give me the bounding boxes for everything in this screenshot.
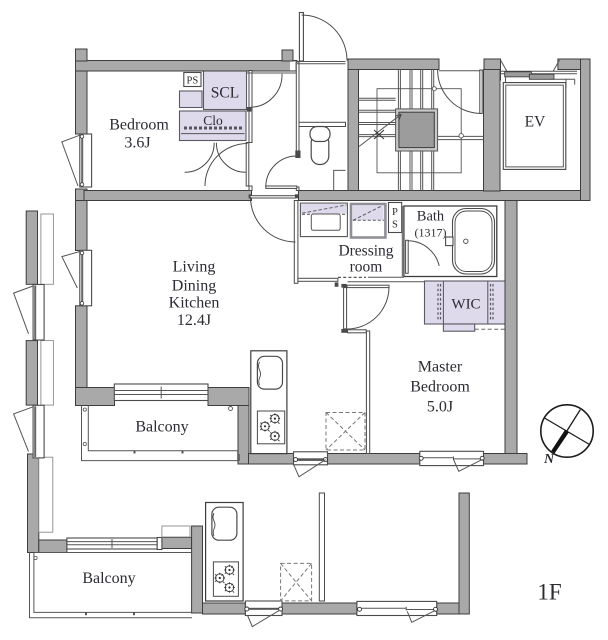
svg-text:PS: PS <box>187 75 199 86</box>
svg-text:Kitchen: Kitchen <box>169 295 220 312</box>
svg-text:Dressing: Dressing <box>338 243 393 260</box>
svg-text:Balcony: Balcony <box>135 419 188 436</box>
svg-text:Living: Living <box>173 259 216 276</box>
svg-text:P: P <box>392 207 398 218</box>
svg-text:WIC: WIC <box>451 297 480 313</box>
svg-text:Bedroom: Bedroom <box>410 379 470 396</box>
svg-text:Dining: Dining <box>172 278 216 295</box>
svg-text:Bedroom: Bedroom <box>109 117 169 134</box>
svg-text:N: N <box>543 452 555 467</box>
svg-text:Clo: Clo <box>203 113 223 128</box>
svg-text:Bath: Bath <box>417 209 445 225</box>
svg-text:(1317): (1317) <box>415 226 447 240</box>
svg-text:Balcony: Balcony <box>82 570 135 587</box>
svg-text:3.6J: 3.6J <box>124 135 150 152</box>
svg-text:5.0J: 5.0J <box>427 399 453 416</box>
svg-text:12.4J: 12.4J <box>177 312 211 329</box>
svg-text:Master: Master <box>418 359 463 376</box>
svg-text:1F: 1F <box>537 580 561 605</box>
svg-text:room: room <box>350 259 383 276</box>
svg-text:S: S <box>392 220 398 231</box>
svg-text:EV: EV <box>525 114 546 131</box>
svg-text:SCL: SCL <box>211 85 239 102</box>
